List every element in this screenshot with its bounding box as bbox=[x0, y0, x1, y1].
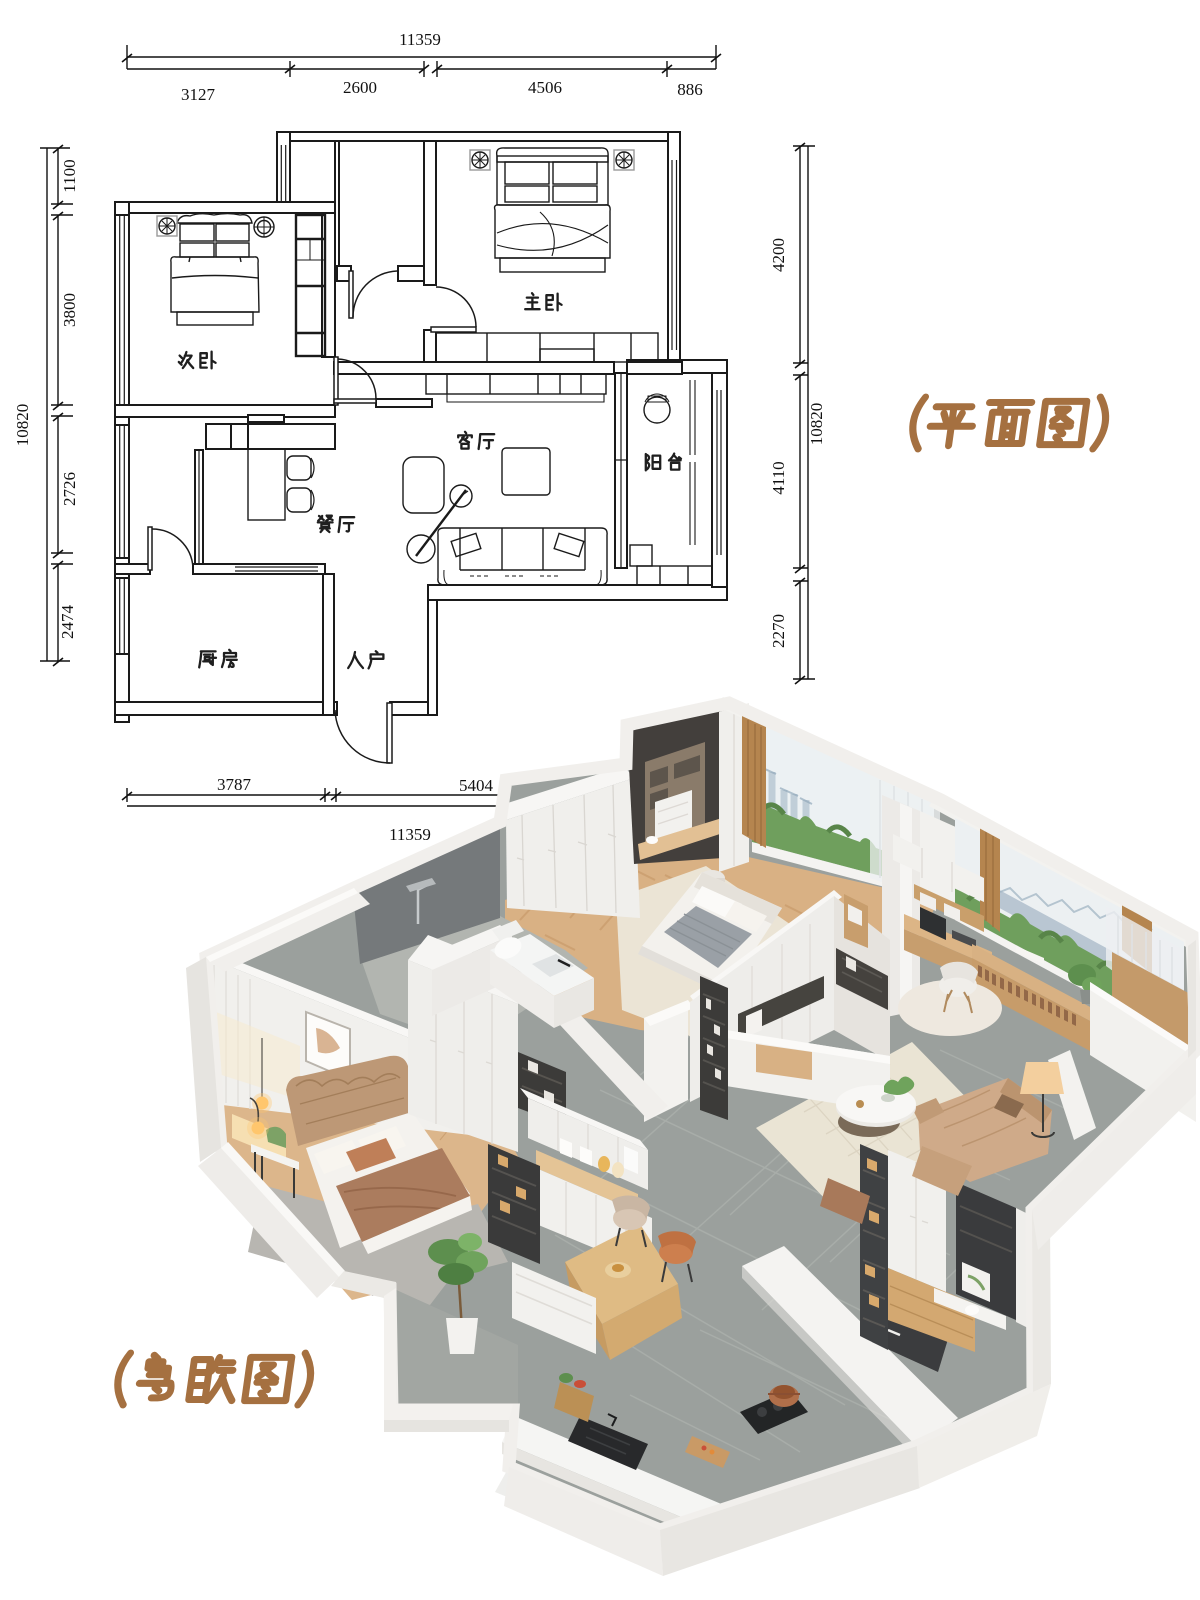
svg-text:4110: 4110 bbox=[769, 461, 788, 494]
svg-text:4506: 4506 bbox=[528, 78, 562, 97]
svg-text:10820: 10820 bbox=[807, 403, 826, 446]
svg-text:2726: 2726 bbox=[60, 472, 79, 506]
svg-text:4200: 4200 bbox=[769, 238, 788, 272]
svg-text:1100: 1100 bbox=[60, 159, 79, 192]
svg-text:2270: 2270 bbox=[769, 614, 788, 648]
svg-text:2600: 2600 bbox=[343, 78, 377, 97]
svg-text:3800: 3800 bbox=[60, 293, 79, 327]
svg-text:3127: 3127 bbox=[181, 85, 216, 104]
svg-text:11359: 11359 bbox=[389, 825, 431, 844]
svg-text:886: 886 bbox=[677, 80, 703, 99]
svg-text:3787: 3787 bbox=[217, 775, 252, 794]
svg-text:10820: 10820 bbox=[13, 404, 32, 447]
svg-text:2474: 2474 bbox=[58, 605, 77, 640]
svg-text:11359: 11359 bbox=[399, 30, 441, 49]
svg-text:5404: 5404 bbox=[459, 776, 494, 795]
